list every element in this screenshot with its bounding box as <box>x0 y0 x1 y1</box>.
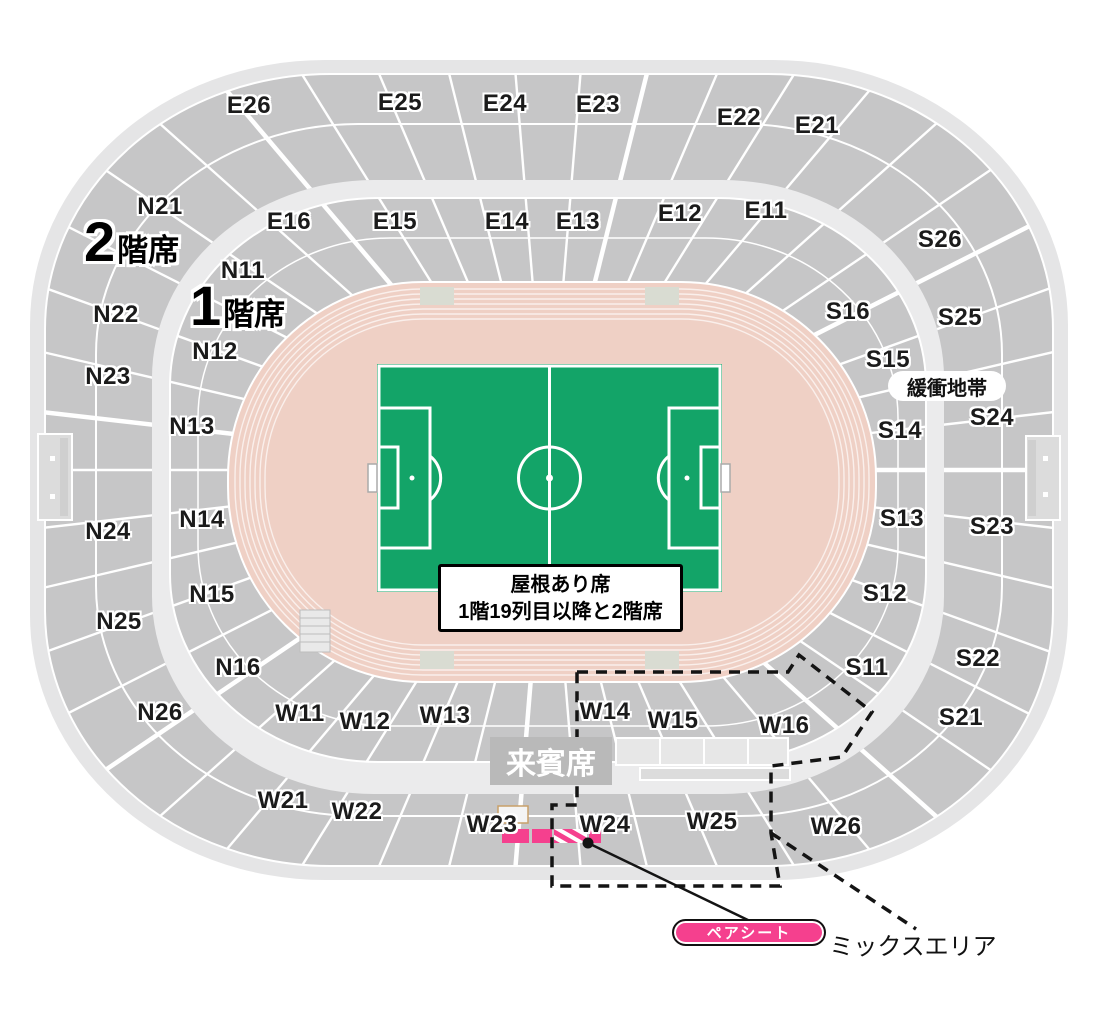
center-spot <box>546 475 553 482</box>
stadium-bowl-graphic <box>0 0 1100 1034</box>
west-gate-structure <box>38 434 72 520</box>
goal-left <box>368 464 377 492</box>
goal-right <box>721 464 730 492</box>
east-gate-structure <box>1026 436 1060 520</box>
camera-platform <box>498 806 528 823</box>
photo-stand-grid <box>300 610 330 652</box>
pair-seat-pointer-dot <box>583 838 594 849</box>
vip-suites <box>616 738 790 780</box>
stadium-seat-map: 2階席1階席 E26E25E24E23E22E21E16E15E14E13E12… <box>0 0 1100 1034</box>
penalty-spot-left <box>410 476 415 481</box>
penalty-spot-right <box>685 476 690 481</box>
